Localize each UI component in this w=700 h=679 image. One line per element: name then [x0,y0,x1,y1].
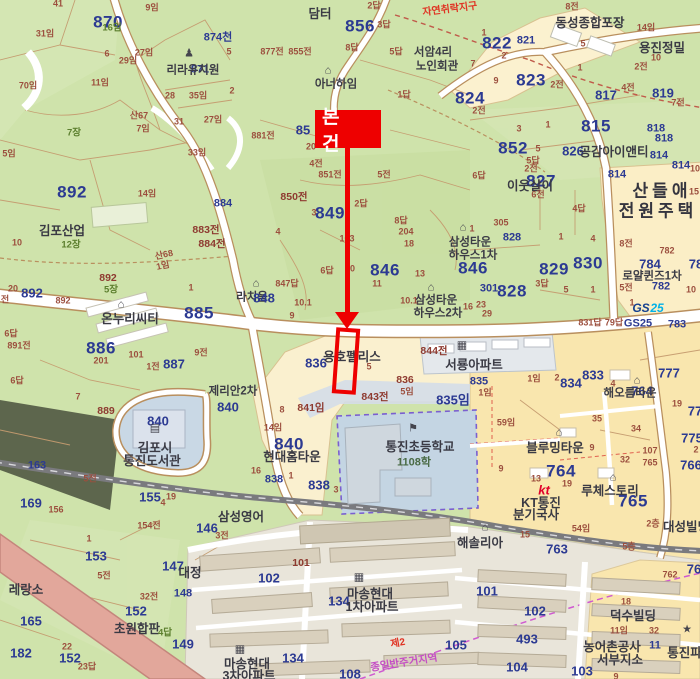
map-label: kt [538,484,550,497]
map-label: 3차아파트 [223,670,276,679]
house-icon: ⌂ [253,279,260,290]
map-label: 8전 [619,240,632,249]
map-label: 892 [57,184,87,201]
map-label: 5 [226,48,231,57]
map-label: 공감아이앤티 [579,146,648,159]
map-label: 204 [398,228,413,237]
house-icon: ⌂ [556,428,563,439]
map-label: 18 [621,598,631,607]
map-label: 101 [476,585,498,598]
map-label: 35 [592,415,602,424]
map-label: 7전 [671,99,684,108]
map-label: 5임 [400,388,413,397]
map-label: 4 [275,228,280,237]
map-label: 산들애 [633,183,692,200]
map-label: 18 [404,240,414,249]
map-label: 10.1 [400,297,418,306]
map-label: 8 [279,406,284,415]
map-label: 101 [128,351,143,360]
map-label: 782 [659,247,674,256]
map-label: 통진도서관 [123,455,181,468]
map-label: 846 [458,260,488,277]
map-label: 29임 [119,57,137,66]
map-label: 전원주택 [619,203,698,220]
map-label: 153 [85,550,107,563]
map-label: 3답 [377,21,390,30]
map-label: 6답 [10,377,23,386]
map-label: 847답 [275,280,298,289]
map-label: 830 [573,255,603,272]
map-label: 156 [48,506,63,515]
map-label: 5 [366,363,371,372]
map-label: 493 [516,633,538,646]
map-label: 삼성타운 [415,295,457,307]
map-label: 15 [689,188,699,197]
apartment-icon: ▦ [235,645,245,656]
map-label: 831답 [578,319,601,328]
map-label: 삼성영어 [218,511,264,524]
map-label: 833 [582,369,604,382]
map-label: 동성종합포장 [555,17,624,30]
map-label: GS25 [624,319,652,330]
map-label: 9 [613,673,618,679]
house-icon: ⌂ [634,376,641,387]
map-label: 5전 [97,572,110,581]
map-label: 초원합판 [114,623,160,636]
map-label: 14임 [637,24,655,33]
map-label: 5 [563,286,568,295]
map-label: 현대홈타운 [263,451,321,464]
map-label: 889 [97,406,115,417]
map-label: 828 [503,233,521,244]
map-label: 전 [1,296,9,305]
house-icon: ⌂ [460,223,467,234]
map-label: 892 [21,287,43,300]
map-label: 841임 [297,403,324,414]
map-label: 11 [372,280,382,289]
map-label: 6전 [531,191,544,200]
map-label: 815 [581,118,611,135]
map-label: 838 [308,479,330,492]
map-label: 4 [160,499,165,508]
map-label: 134 [282,652,304,665]
map-label: 881전 [251,132,274,141]
map-label: 182 [10,647,32,660]
map-label: 784 [639,258,661,271]
subject-arrow-head-icon [335,312,359,329]
subject-annotation-label: 본 건 [315,102,381,156]
map-label: 9전 [194,349,207,358]
map-label: 887 [163,358,185,371]
map-label: 148 [174,589,192,600]
map-label: 5층 [622,543,635,552]
emblem-icon: ★ [682,625,692,636]
map-label: 4답 [158,628,172,638]
map-label: 1 [577,64,582,73]
map-label: 821 [517,36,535,47]
map-label: 11 [649,641,661,652]
map-label: 782 [652,282,670,293]
map-label: 818 [655,134,673,145]
map-label: 28 [165,92,175,101]
map-label: 자연취락지구 [422,2,478,19]
map-label: 14임 [264,424,282,433]
school-flag-icon: ⚑ [408,424,418,435]
map-label: 7 [470,60,475,69]
map-label: 78 [689,258,700,271]
map-label: 886 [86,340,116,357]
map-label: 835 [470,377,488,388]
map-label: 34 [631,425,641,434]
map-label: 848 [253,292,275,305]
map-label: 1 [288,472,293,481]
map-label: 31임 [36,30,54,39]
library-icon: ▤ [150,424,160,435]
map-label: 765 [642,459,657,468]
map-label: 201 [93,357,108,366]
map-label: 102 [524,605,546,618]
house-icon: ⌂ [610,473,617,484]
subject-arrow-line [345,148,350,314]
apartment-icon: ▦ [354,573,364,584]
map-label: 1 [558,233,563,242]
map-label: 765 [618,493,648,510]
map-label: 5전 [83,475,96,484]
map-label: 79답 [605,319,623,328]
map-label: 32전 [140,593,158,602]
map-label: 835임 [436,394,470,407]
map-label: 836 [396,375,414,386]
map-label: 2전 [472,107,485,116]
map-label: 1차아파트 [346,601,399,614]
map-label: 김포산업 [39,225,85,238]
map-label: 107 [642,447,657,456]
subject-parcel-outline [332,327,361,395]
map-label: 1 [481,29,486,38]
subject-annotation-box: 본 건 [315,110,381,148]
map-label: 775 [681,432,700,445]
map-label: 169 [20,497,42,510]
map-label: 5전 [619,284,632,293]
map-label: 834 [560,377,582,390]
map-label: 874천 [204,33,232,44]
map-label: 16 [251,467,261,476]
map-label: 41 [53,0,63,9]
map-label: 838 [265,475,283,486]
map-label: 4전 [309,160,322,169]
map-label: 301 [480,284,498,295]
map-label: 4답 [572,205,585,214]
map-label: 766 [680,459,700,472]
map-label: 764 [546,463,576,480]
map-label: 154전 [137,522,160,531]
map-label: 이웃살이 [507,180,553,193]
map-label: 덕수빌딩 [610,610,656,623]
map-label: 59임 [497,419,515,428]
map-label: 777 [658,367,680,380]
map-label: 19 [562,480,572,489]
map-label: 814 [608,170,626,181]
map-label: 108 [339,668,361,679]
map-label: 70임 [19,82,37,91]
map-label: 149 [172,638,194,651]
map-label: 11임 [91,79,109,88]
map-label: 884 [214,199,232,210]
map-label: 해솔리아 [457,537,503,550]
map-label: 4 [590,235,595,244]
map-label: 3 [333,486,338,495]
map-label: 1108학 [397,458,431,469]
map-label: 163 [28,461,46,472]
map-label: 6답 [4,330,17,339]
map-label: 16 [463,303,473,312]
map-label: 6답 [320,267,333,276]
map-label: 10.1 [294,299,312,308]
map-label: 885 [184,305,214,322]
map-label: 아너하임 [315,79,357,91]
map-label: 25 [650,302,663,314]
map-label: 884전 [198,239,225,250]
map-label: 6 [104,50,109,59]
map-label: 2 [501,52,506,61]
map-label: 155 [139,491,161,504]
house-icon: ⌂ [118,300,125,311]
map-label: 서암4리 [414,47,452,59]
map-label: 103 [571,665,593,678]
map-label: 101 [292,558,310,569]
map-label: 19 [166,493,176,502]
house-icon: ⌂ [482,523,489,534]
map-label: 165 [20,615,42,628]
map-label: 9임 [145,4,158,13]
map-label: 2 [554,374,559,383]
map-label: 2 [229,87,234,96]
map-label: 844전 [420,346,447,357]
map-label: 883전 [192,225,219,236]
map-label: 892 [99,273,117,284]
map-label: 10 [686,286,696,295]
map-label: 6답 [472,172,485,181]
map-label: 855전 [288,48,311,57]
map-label: 5임 [2,150,15,159]
map-label: 29 [482,310,492,319]
map-label: 102 [258,572,280,585]
map-label: 814 [672,161,690,172]
map-label: 7임 [136,125,149,134]
map-label: 10 [12,239,22,248]
map-label: 1 [590,286,595,295]
map-label: 마송현대 [347,588,393,601]
map-label: 1전 [146,363,159,372]
map-label: 1임 [527,375,540,384]
map-label: 843전 [361,392,388,403]
map-label: 852 [498,140,528,157]
map-label: 23답 [78,663,96,672]
map-label: 152 [125,605,147,618]
map-label: 2답 [354,200,367,209]
map-label: 노인회관 [416,61,458,73]
map-label: 2 [693,446,698,455]
map-label: 828 [497,283,527,300]
map-label: 763 [546,543,568,556]
map-label: 3 [516,125,521,134]
map-label: 김포시 [138,442,173,455]
map-label: 산67 [130,112,148,121]
map-label: 877전 [260,48,283,57]
map-label: 9 [493,77,498,86]
map-label: 11임 [610,627,628,636]
apartment-icon: ▦ [457,341,467,352]
map-label: 824 [455,90,485,107]
map-label: 5답 [389,48,402,57]
map-label: 1임 [156,260,171,272]
map-label: 85 [296,124,310,137]
map-label: 해오름타운 [604,388,657,400]
house-icon: ⌂ [428,283,435,294]
map-label: 5 [535,145,540,154]
map-label: 856 [345,18,375,35]
map-label: 5전 [377,171,390,180]
map-label: 76 [687,563,700,576]
map-label: 온누리씨티 [101,313,159,326]
map-label: GS [632,302,649,314]
map-label: 용진정밀 [639,42,685,55]
map-label: 2전 [634,63,647,72]
map-label: 35임 [189,92,207,101]
map-label: 13 [415,270,425,279]
map-label: 762 [662,571,677,580]
map-label: 891전 [7,342,30,351]
map-label: 분기국사 [513,509,559,522]
map-label: 9 [589,444,594,453]
map-label: 16임 [102,23,121,33]
map-label: 삼성타운 [449,237,491,249]
map-label: 10 [651,54,661,63]
map-label: 33임 [188,149,206,158]
map-label: 2답 [367,2,380,11]
map-label: 통진초등학교 [385,441,454,454]
map-label: 1 [545,121,550,130]
map-label: 32 [649,627,659,636]
map-label: 1임 [478,389,491,398]
map-label: 1 [469,225,474,234]
map-label: 종일반주거지역 [370,653,438,674]
map-label: 19 [672,400,682,409]
map-label: 하우스2차 [414,308,463,320]
map-label: 20 [8,285,18,294]
map-label: 4전 [621,84,634,93]
map-label: 8전 [565,3,578,12]
map-label: 3전 [215,532,228,541]
house-icon: ⌂ [325,66,332,77]
map-label: 블루밍타운 [526,442,584,455]
map-label: 3답 [535,280,548,289]
map-label: 1답 [397,91,410,100]
map-label: 1 [188,284,193,293]
map-label: 305 [493,219,508,228]
map-label: 783 [668,320,686,331]
map-label: 77 [688,405,700,418]
map-label: 851전 [318,171,341,180]
map-label: 8답 [394,217,407,226]
map-label: 10 [690,165,700,174]
map-label: 2전 [550,81,563,90]
map-label: 54임 [572,525,590,534]
map-label: 840 [217,401,239,414]
map-label: 892 [55,297,70,306]
map-label: 담터 [308,8,331,21]
map-label: 5 [580,40,585,49]
map-label: 리라유치원 [167,65,220,77]
map-label: 32 [620,456,630,465]
cadastral-map: 419임2답8전자연취락지구담터8708563답동성종합포장14임16임31임8… [0,0,700,679]
map-label: 14임 [138,190,156,199]
map-label: 850전 [280,192,307,203]
map-label: 829 [539,261,569,278]
map-label: 849 [315,205,345,222]
map-label: 농어촌공사 [583,641,641,654]
map-label: 823 [516,72,546,89]
map-label: 27임 [204,116,222,125]
map-label: 서부지소 [597,654,643,667]
map-label: 8답 [345,44,358,53]
map-label: 846 [370,262,400,279]
map-label: 제2 [390,638,406,650]
map-label: 7 [75,393,80,402]
map-label: 822 [482,35,512,52]
map-label: 31 [174,118,184,127]
map-label: 대정 [178,567,201,580]
map-label: 통진파출소 [667,647,700,660]
map-label: 105 [445,639,467,652]
map-label: 1 [86,535,91,544]
map-label: 12장 [61,240,80,250]
map-label: 5장 [104,285,118,295]
map-label: 814 [650,151,668,162]
person-icon: ♟ [184,49,194,60]
map-label: 104 [506,661,528,674]
map-label: 2층 [646,520,659,529]
map-label: 27임 [135,49,153,58]
map-label: 817 [595,89,617,102]
map-label: 레랑소 [9,584,44,597]
map-label: 15 [520,531,530,540]
map-label: 제리안2차 [209,386,258,398]
map-label: 9 [289,312,294,321]
map-label: 서룡아파트 [445,359,503,372]
map-label: 9 [498,465,503,474]
map-label: 대성빌딩 [663,521,700,534]
map-label: 7장 [67,128,81,138]
